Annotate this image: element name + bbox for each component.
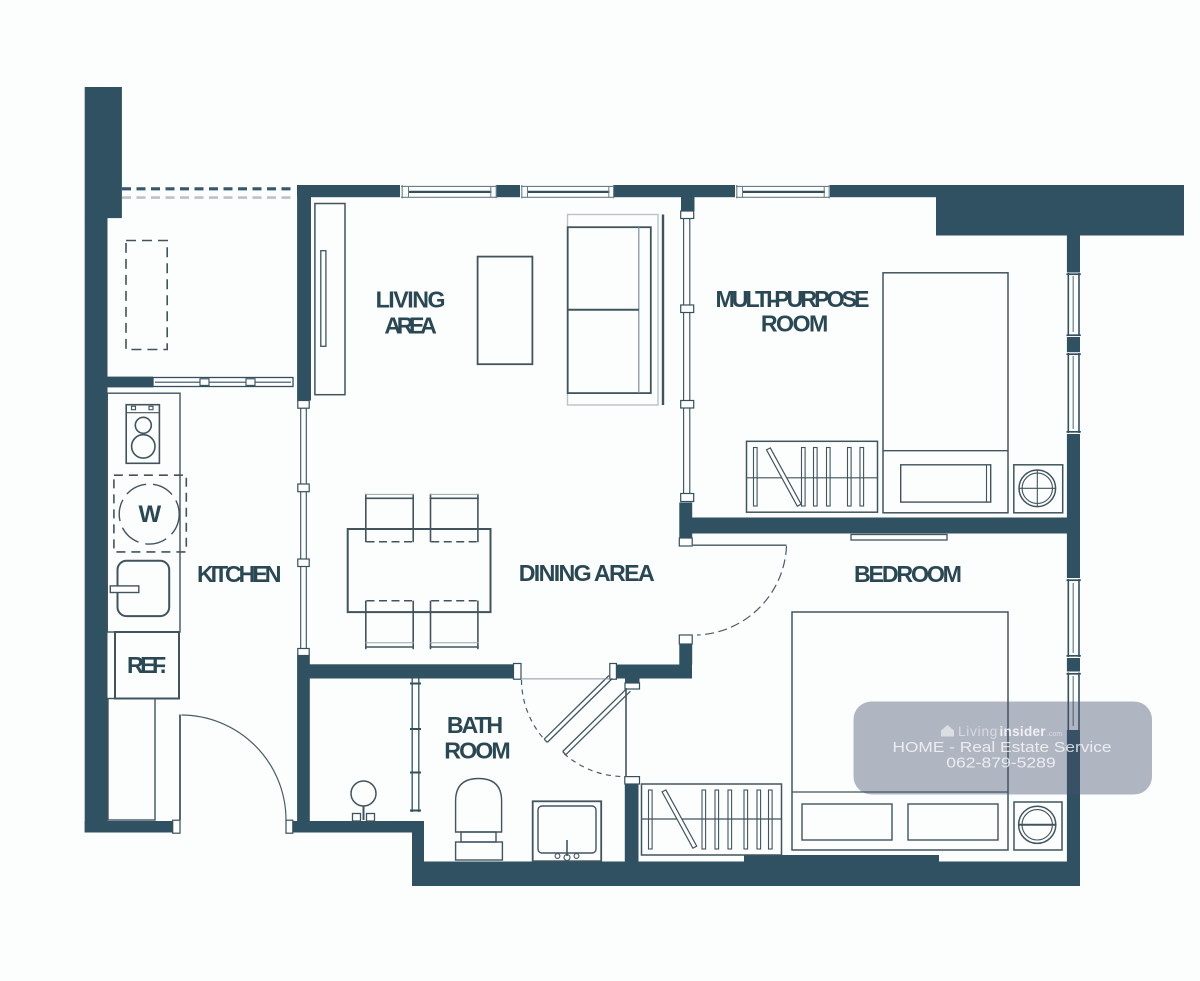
svg-text:LIVING: LIVING	[376, 287, 446, 313]
svg-text:insider: insider	[1000, 724, 1047, 739]
svg-text:062-879-5289: 062-879-5289	[946, 755, 1056, 772]
svg-text:BATH: BATH	[447, 712, 503, 738]
svg-text:AREA: AREA	[384, 313, 437, 339]
svg-text:W: W	[138, 501, 161, 528]
svg-text:ROOM: ROOM	[444, 737, 510, 763]
svg-text:Living: Living	[958, 724, 998, 739]
svg-text:KITCHEN: KITCHEN	[197, 561, 282, 587]
svg-text:MULTI-PURPOSE: MULTI-PURPOSE	[716, 286, 870, 312]
svg-text:HOME - Real Estate Service: HOME - Real Estate Service	[893, 739, 1112, 756]
svg-text:BEDROOM: BEDROOM	[854, 561, 962, 587]
svg-text:ROOM: ROOM	[761, 311, 829, 337]
svg-text:.com: .com	[1047, 731, 1062, 738]
svg-text:REF.: REF.	[127, 652, 166, 678]
svg-text:DINING AREA: DINING AREA	[519, 560, 655, 586]
